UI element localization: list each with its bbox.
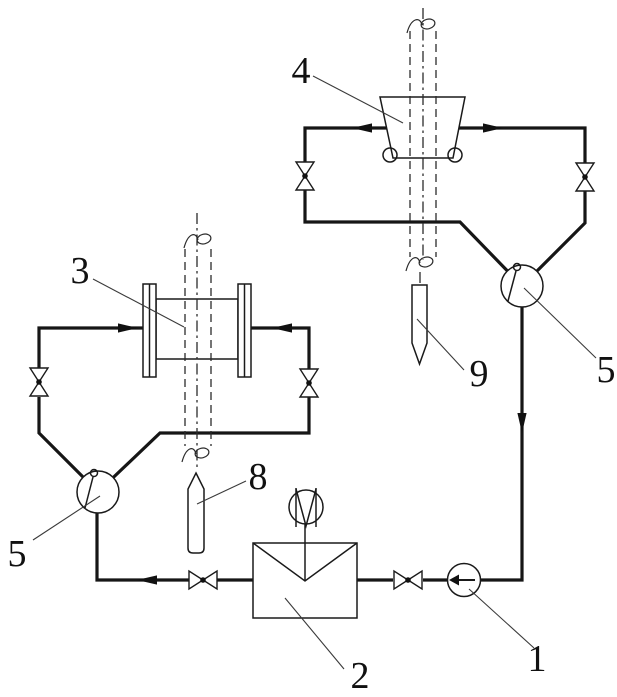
pipe-right-drop [481, 286, 522, 580]
flow-arrow-left-icon [352, 123, 372, 132]
flow-arrow-into-3-left-icon [118, 323, 138, 332]
valve-bottom-left [189, 571, 217, 589]
break-symbol-bottom-4 [406, 256, 434, 271]
pipe-upper-right-out [450, 128, 585, 163]
label-part-5-left: 5 [8, 533, 27, 575]
agitated-vessel-2 [253, 488, 357, 618]
valve-bottom-right [394, 571, 422, 589]
valve-lower-right [300, 369, 318, 397]
label-part-1: 1 [528, 638, 547, 680]
lance-8-tip [188, 473, 204, 553]
lance-9-tip [412, 285, 427, 364]
pipe-upper-left-down [305, 190, 522, 286]
process-schematic-figure: 4 3 8 9 5 5 2 1 [0, 0, 617, 697]
leader-1 [469, 589, 534, 648]
label-part-8: 8 [249, 456, 268, 498]
pump-1 [448, 564, 481, 597]
flow-arrow-right-icon [483, 123, 503, 132]
flow-arrow-down-icon [517, 413, 526, 433]
flow-arrow-bottom-icon [137, 575, 157, 584]
flow-arrow-into-3-right-icon [272, 323, 292, 332]
valve-upper-right [576, 163, 594, 191]
leader-5-right [524, 288, 596, 358]
pipe-upper-left-out [305, 128, 400, 162]
valve-lower-left [30, 368, 48, 396]
break-symbol-top-4 [407, 18, 436, 33]
patent-figure-page: 4 3 8 9 5 5 2 1 [0, 0, 617, 697]
label-part-3: 3 [71, 250, 90, 292]
label-part-5-right: 5 [597, 349, 616, 391]
pipe-left-into-exchanger [39, 328, 143, 369]
valves [30, 162, 594, 589]
pipe-right-into-exchanger [250, 328, 309, 369]
label-part-9: 9 [470, 353, 489, 395]
leader-5-left [33, 496, 100, 540]
label-part-2: 2 [351, 655, 370, 697]
break-symbol-top-3 [184, 233, 212, 248]
agitator-drive-icon [289, 488, 323, 527]
break-symbol-bottom-3 [182, 447, 210, 462]
label-part-4: 4 [292, 50, 311, 92]
pipe-right-branch-up [98, 397, 309, 492]
valve-upper-left [296, 162, 314, 190]
